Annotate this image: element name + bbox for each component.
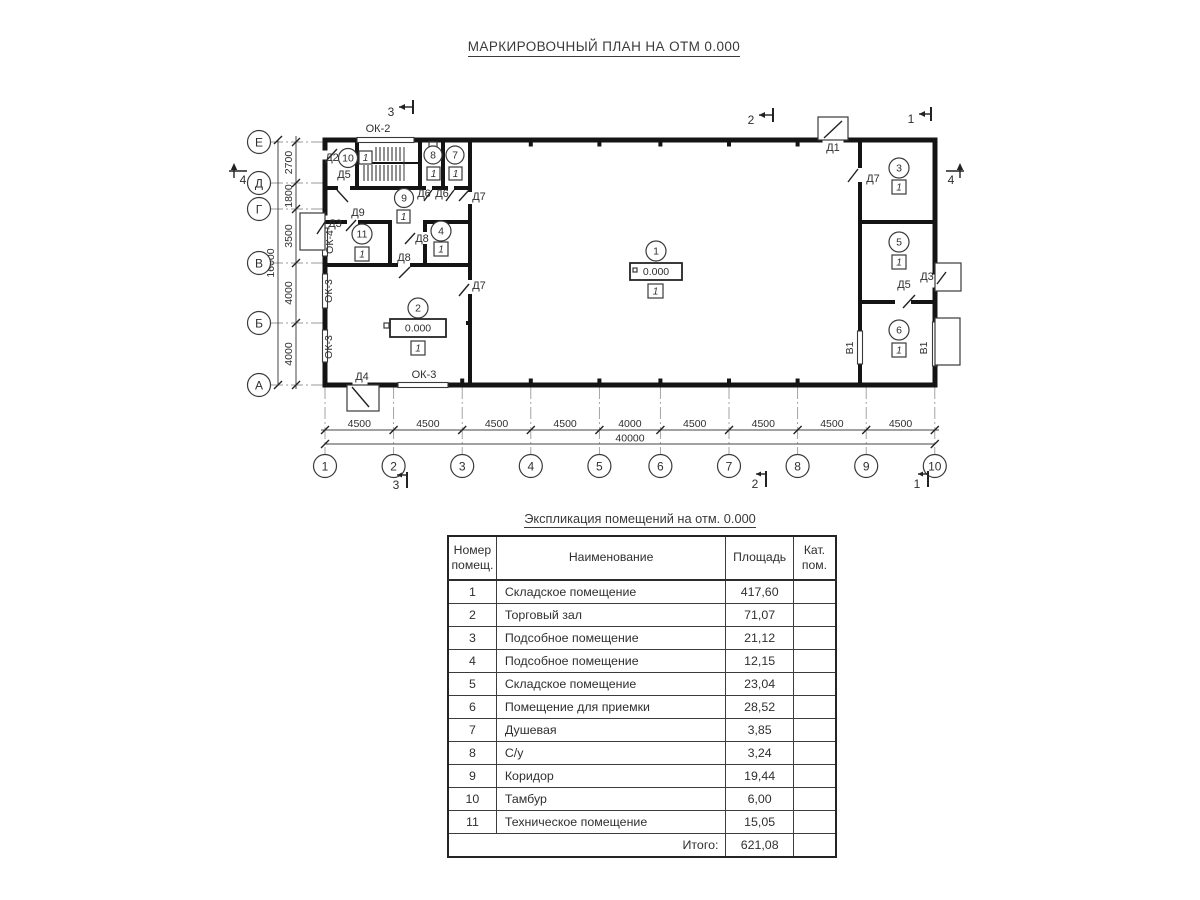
window-label: ОК-3 [323, 279, 335, 303]
room-name-cell: С/у [496, 742, 726, 765]
axis-letter: Е [255, 136, 263, 150]
category-mark: 1 [363, 153, 369, 164]
dim-label: 4000 [618, 418, 642, 430]
vent-label: В1 [918, 341, 930, 354]
door-label: Д8 [415, 233, 429, 245]
table-row: 10Тамбур6,00 [448, 788, 836, 811]
room-number-cell: 8 [448, 742, 496, 765]
total-row: Итого: 621,08 [448, 834, 836, 858]
room-area-cell: 19,44 [726, 765, 793, 788]
dimensions-bottom: 4500 4500 4500 4500 4000 4500 4500 4500 … [321, 418, 939, 448]
door-label: Д2 [325, 152, 339, 164]
room-number: 5 [896, 237, 902, 249]
header-room-name: Наименование [496, 536, 726, 580]
section-label: 3 [393, 478, 400, 492]
category-mark: 1 [653, 287, 659, 298]
axis-bubbles-left: Е Д Г В Б А [248, 131, 271, 397]
table-row: 11Техническое помещение15,05 [448, 811, 836, 834]
room-category-cell [793, 765, 836, 788]
room-area-cell: 15,05 [726, 811, 793, 834]
dim-label: 4500 [820, 418, 844, 430]
axis-number: 5 [596, 460, 603, 474]
room-category-cell [793, 673, 836, 696]
left-landing [300, 213, 325, 250]
section-label: 2 [752, 477, 759, 491]
room-name-cell: Техническое помещение [496, 811, 726, 834]
category-mark: 1 [431, 169, 437, 180]
room-area-cell: 6,00 [726, 788, 793, 811]
table-row: 8С/у3,24 [448, 742, 836, 765]
table-row: 7Душевая3,85 [448, 719, 836, 742]
axis-letter: А [255, 379, 263, 393]
room-number-cell: 4 [448, 650, 496, 673]
room-category-cell [793, 580, 836, 604]
dim-label: 4000 [283, 281, 295, 305]
room-number: 6 [896, 325, 902, 337]
door-label: Д3 [328, 218, 342, 230]
dim-total-label: 40000 [615, 433, 644, 445]
room-name-cell: Торговый зал [496, 604, 726, 627]
table-row: 1Складское помещение417,60 [448, 580, 836, 604]
floor-plan: 4500 4500 4500 4500 4000 4500 4500 4500 … [0, 0, 1200, 500]
room-area-cell: 23,04 [726, 673, 793, 696]
room-name-cell: Складское помещение [496, 673, 726, 696]
room-area-cell: 28,52 [726, 696, 793, 719]
axis-number: 3 [459, 460, 466, 474]
room-number: 9 [401, 193, 407, 205]
dim-label: 4500 [485, 418, 509, 430]
room-category-cell [793, 650, 836, 673]
schedule-title: Экспликация помещений на отм. 0.000 [524, 511, 756, 528]
section-label: 4 [240, 173, 247, 187]
door-label: Д1 [826, 142, 840, 154]
category-mark: 1 [438, 245, 444, 256]
room-number-cell: 10 [448, 788, 496, 811]
axis-letter: Б [255, 317, 263, 331]
vent-label: В1 [844, 341, 856, 354]
section-label: 3 [388, 105, 395, 119]
axis-letter: Д [255, 177, 263, 191]
right-landing-2 [935, 318, 960, 365]
room-area-cell: 12,15 [726, 650, 793, 673]
dim-label: 1800 [283, 184, 295, 208]
axis-number: 6 [657, 460, 664, 474]
room-number: 4 [438, 226, 444, 238]
axis-number: 2 [390, 460, 397, 474]
room-number: 10 [342, 153, 354, 165]
table-row: 4Подсобное помещение12,15 [448, 650, 836, 673]
axis-letter: Г [256, 203, 263, 217]
room-number: 8 [430, 150, 436, 162]
dim-label: 3500 [283, 224, 295, 248]
right-landing-1 [935, 263, 961, 291]
dim-label: 4500 [553, 418, 577, 430]
axis-number: 7 [726, 460, 733, 474]
window-label: ОК-3 [412, 369, 437, 381]
window-label: ОК-4 [324, 230, 336, 254]
bottom-porch [347, 385, 379, 411]
schedule-title-wrap: Экспликация помещений на отм. 0.000 [440, 510, 840, 528]
room-category-cell [793, 627, 836, 650]
room-name-cell: Тамбур [496, 788, 726, 811]
room-name-cell: Подсобное помещение [496, 650, 726, 673]
room-number: 3 [896, 163, 902, 175]
table-row: 3Подсобное помещение21,12 [448, 627, 836, 650]
door-label: Д7 [472, 280, 486, 292]
total-category-empty [793, 834, 836, 858]
schedule-table: Номер помещ. Наименование Площадь Кат. п… [447, 535, 837, 858]
entrance-vestibule [818, 117, 848, 140]
room-number-cell: 7 [448, 719, 496, 742]
drawing-title-wrap: МАРКИРОВОЧНЫЙ ПЛАН НА ОТМ 0.000 [0, 38, 1200, 57]
room-number-cell: 1 [448, 580, 496, 604]
window-label: ОК-2 [366, 123, 391, 135]
category-mark: 1 [896, 258, 902, 269]
room-number-cell: 9 [448, 765, 496, 788]
room-number-cell: 2 [448, 604, 496, 627]
drawing-title: МАРКИРОВОЧНЫЙ ПЛАН НА ОТМ 0.000 [468, 39, 740, 57]
dim-label: 4500 [889, 418, 913, 430]
room-number-cell: 6 [448, 696, 496, 719]
room-name-cell: Помещение для приемки [496, 696, 726, 719]
room-category-cell [793, 742, 836, 765]
category-mark: 1 [896, 346, 902, 357]
header-room-number: Номер помещ. [448, 536, 496, 580]
dim-label: 4500 [348, 418, 372, 430]
room-name-cell: Коридор [496, 765, 726, 788]
room-area-cell: 3,85 [726, 719, 793, 742]
room-name-cell: Душевая [496, 719, 726, 742]
door-label: Д7 [472, 191, 486, 203]
door-label: Д5 [897, 279, 911, 291]
category-mark: 1 [896, 183, 902, 194]
dim-label: 4000 [283, 342, 295, 366]
room-number: 1 [653, 246, 659, 258]
room-number: 2 [415, 303, 421, 315]
room-number: 7 [452, 150, 458, 162]
room-area-cell: 71,07 [726, 604, 793, 627]
door-label: Д6 [435, 188, 449, 200]
header-room-category: Кат. пом. [793, 536, 836, 580]
axis-number: 8 [794, 460, 801, 474]
dim-label: 2700 [283, 151, 295, 175]
room-category-cell [793, 604, 836, 627]
room-category-cell [793, 788, 836, 811]
window-label: ОК-3 [323, 335, 335, 359]
elevation-mark: 0.000 [643, 266, 669, 278]
door-label: Д5 [337, 169, 351, 181]
room-number-cell: 3 [448, 627, 496, 650]
total-label: Итого: [448, 834, 726, 858]
header-room-area: Площадь [726, 536, 793, 580]
elevation-mark: 0.000 [405, 323, 431, 335]
axis-number: 1 [322, 460, 329, 474]
axis-number: 4 [527, 460, 534, 474]
dim-label: 4500 [752, 418, 776, 430]
room-area-cell: 3,24 [726, 742, 793, 765]
section-label: 2 [748, 113, 755, 127]
room-area-cell: 21,12 [726, 627, 793, 650]
table-row: 5Складское помещение23,04 [448, 673, 836, 696]
section-label: 4 [948, 173, 955, 187]
door-label: Д6 [417, 188, 431, 200]
room-area-cell: 417,60 [726, 580, 793, 604]
dim-label: 4500 [683, 418, 707, 430]
category-mark: 1 [401, 212, 407, 223]
schedule-header-row: Номер помещ. Наименование Площадь Кат. п… [448, 536, 836, 580]
total-value: 621,08 [726, 834, 793, 858]
dim-label: 4500 [416, 418, 440, 430]
schedule-body: 1Складское помещение417,602Торговый зал7… [448, 580, 836, 834]
door-label: Д7 [866, 173, 880, 185]
door-label: Д9 [351, 207, 365, 219]
room-category-cell [793, 811, 836, 834]
room-number-cell: 11 [448, 811, 496, 834]
drawing-sheet: МАРКИРОВОЧНЫЙ ПЛАН НА ОТМ 0.000 [0, 0, 1200, 900]
room-number: 11 [357, 229, 368, 241]
door-label: Д3 [920, 271, 934, 283]
room-name-cell: Подсобное помещение [496, 627, 726, 650]
axis-letter: В [255, 257, 263, 271]
section-label: 1 [914, 477, 921, 491]
door-label: Д4 [355, 371, 369, 383]
section-label: 1 [908, 112, 915, 126]
table-row: 6Помещение для приемки28,52 [448, 696, 836, 719]
axis-bubbles-bottom: 1 2 3 4 5 6 7 8 9 10 [314, 455, 947, 478]
category-mark: 1 [359, 250, 365, 261]
category-mark: 1 [415, 344, 421, 355]
room-category-cell [793, 696, 836, 719]
room-category-cell [793, 719, 836, 742]
axis-number: 9 [863, 460, 870, 474]
door-label: Д8 [397, 252, 411, 264]
room-name-cell: Складское помещение [496, 580, 726, 604]
room-number-cell: 5 [448, 673, 496, 696]
table-row: 2Торговый зал71,07 [448, 604, 836, 627]
table-row: 9Коридор19,44 [448, 765, 836, 788]
axis-number: 10 [928, 460, 942, 474]
category-mark: 1 [453, 169, 459, 180]
